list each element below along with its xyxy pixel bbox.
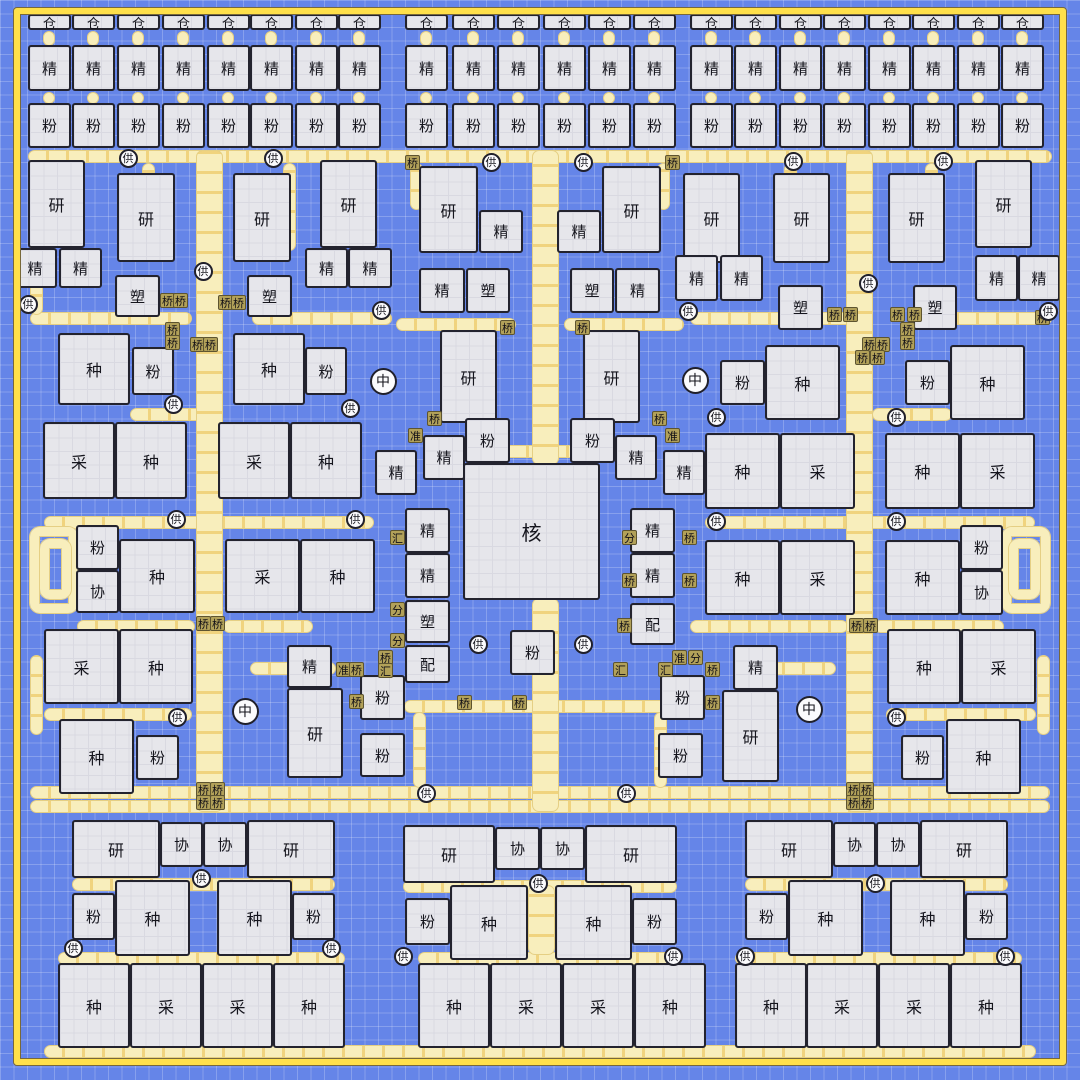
conveyor-coil[interactable] — [1009, 539, 1040, 599]
building-mill[interactable]: 粉 — [660, 675, 705, 720]
building-planter[interactable]: 种 — [950, 963, 1022, 1048]
splitter-tile[interactable]: 分 — [622, 530, 637, 545]
building-storage[interactable]: 仓 — [823, 14, 866, 30]
building-refiner[interactable]: 精 — [72, 45, 115, 91]
building-refiner[interactable]: 精 — [287, 645, 332, 688]
building-planter[interactable]: 种 — [115, 422, 187, 499]
building-refiner[interactable]: 精 — [912, 45, 955, 91]
building-storage[interactable]: 仓 — [295, 14, 338, 30]
supply-node[interactable]: 供 — [64, 939, 83, 958]
building-refiner[interactable]: 精 — [348, 248, 392, 288]
building-storage[interactable]: 仓 — [338, 14, 381, 30]
bridge-tile[interactable]: 桥 — [575, 320, 590, 335]
building-mill[interactable]: 粉 — [72, 893, 115, 940]
building-mill[interactable]: 粉 — [136, 735, 179, 780]
building-assist[interactable]: 协 — [160, 822, 203, 867]
building-refiner[interactable]: 精 — [207, 45, 250, 91]
building-storage[interactable]: 仓 — [734, 14, 777, 30]
supply-node[interactable]: 供 — [574, 153, 593, 172]
supply-node[interactable]: 供 — [707, 512, 726, 531]
building-storage[interactable]: 仓 — [912, 14, 955, 30]
building-molder[interactable]: 塑 — [247, 275, 292, 317]
building-mill[interactable]: 粉 — [868, 103, 911, 148]
bridge-tile[interactable]: 桥 — [682, 530, 697, 545]
building-planter[interactable]: 种 — [418, 963, 490, 1048]
building-mill[interactable]: 粉 — [250, 103, 293, 148]
building-planter[interactable]: 种 — [115, 880, 190, 956]
building-refiner[interactable]: 精 — [162, 45, 205, 91]
building-storage[interactable]: 仓 — [779, 14, 822, 30]
building-refiner[interactable]: 精 — [497, 45, 540, 91]
supply-node[interactable]: 供 — [707, 408, 726, 427]
bridge-tile[interactable]: 桥 — [682, 573, 697, 588]
building-mill[interactable]: 粉 — [779, 103, 822, 148]
conveyor-link[interactable] — [467, 31, 479, 46]
building-planter[interactable]: 种 — [634, 963, 706, 1048]
supply-node[interactable]: 供 — [679, 302, 698, 321]
building-mill[interactable]: 粉 — [633, 103, 676, 148]
conveyor-link[interactable] — [132, 31, 144, 46]
conveyor-coil[interactable] — [40, 539, 71, 599]
building-molder[interactable]: 塑 — [570, 268, 614, 313]
supply-node[interactable]: 供 — [341, 399, 360, 418]
building-refiner[interactable]: 精 — [117, 45, 160, 91]
conveyor-belt[interactable] — [528, 885, 555, 955]
building-planter[interactable]: 种 — [233, 333, 305, 405]
building-mill[interactable]: 粉 — [295, 103, 338, 148]
bridge-tile[interactable]: 桥 — [500, 320, 515, 335]
building-mill[interactable]: 粉 — [960, 525, 1003, 570]
building-refiner[interactable]: 精 — [305, 248, 348, 288]
conveyor-belt[interactable] — [690, 620, 848, 633]
building-mill[interactable]: 粉 — [28, 103, 71, 148]
conveyor-link[interactable] — [87, 31, 99, 46]
merger-tile[interactable]: 汇 — [390, 530, 405, 545]
building-refiner[interactable]: 精 — [557, 210, 601, 253]
aligner-tile[interactable]: 准 — [408, 428, 423, 443]
splitter-tile[interactable]: 分 — [390, 602, 405, 617]
hub-node[interactable]: 中 — [370, 368, 397, 395]
building-storage[interactable]: 仓 — [117, 14, 160, 30]
building-mill[interactable]: 粉 — [305, 347, 347, 395]
bridge-tile[interactable]: 桥 — [870, 350, 885, 365]
supply-node[interactable]: 供 — [168, 708, 187, 727]
conveyor-link[interactable] — [648, 31, 660, 46]
building-lab[interactable]: 研 — [975, 160, 1032, 248]
building-mill[interactable]: 粉 — [465, 418, 510, 463]
conveyor-link[interactable] — [794, 31, 806, 46]
building-refiner[interactable]: 精 — [338, 45, 381, 91]
building-planter[interactable]: 种 — [300, 539, 375, 613]
bridge-tile[interactable]: 桥 — [890, 307, 905, 322]
conveyor-belt[interactable] — [223, 620, 313, 633]
building-planter[interactable]: 种 — [119, 539, 195, 613]
building-mill[interactable]: 粉 — [745, 893, 788, 940]
supply-node[interactable]: 供 — [19, 295, 38, 314]
aligner-tile[interactable]: 准 — [672, 650, 687, 665]
building-mill[interactable]: 粉 — [360, 675, 405, 720]
building-harvester[interactable]: 采 — [225, 539, 300, 613]
building-lab[interactable]: 研 — [440, 330, 497, 423]
building-storage[interactable]: 仓 — [588, 14, 631, 30]
building-mill[interactable]: 粉 — [905, 360, 950, 405]
building-assist[interactable]: 协 — [540, 827, 585, 870]
supply-node[interactable]: 供 — [372, 301, 391, 320]
building-lab[interactable]: 研 — [320, 160, 377, 248]
bridge-tile[interactable]: 桥 — [652, 411, 667, 426]
building-refiner[interactable]: 精 — [423, 435, 465, 480]
building-lab[interactable]: 研 — [583, 330, 640, 423]
building-mill[interactable]: 粉 — [720, 360, 765, 405]
building-storage[interactable]: 仓 — [957, 14, 1000, 30]
building-refiner[interactable]: 精 — [13, 248, 57, 288]
building-mill[interactable]: 粉 — [658, 733, 703, 778]
conveyor-belt[interactable] — [30, 655, 43, 735]
bridge-tile[interactable]: 桥 — [617, 618, 632, 633]
conveyor-belt[interactable] — [872, 408, 952, 421]
building-mill[interactable]: 粉 — [632, 898, 677, 945]
supply-node[interactable]: 供 — [996, 947, 1015, 966]
building-lab[interactable]: 研 — [247, 820, 335, 878]
building-mill[interactable]: 粉 — [823, 103, 866, 148]
building-mill[interactable]: 粉 — [570, 418, 615, 463]
building-harvester[interactable]: 采 — [202, 963, 273, 1048]
conveyor-link[interactable] — [972, 31, 984, 46]
building-harvester[interactable]: 采 — [960, 433, 1035, 509]
supply-node[interactable]: 供 — [887, 708, 906, 727]
building-planter[interactable]: 种 — [885, 433, 960, 509]
building-mill[interactable]: 粉 — [117, 103, 160, 148]
building-storage[interactable]: 仓 — [1001, 14, 1044, 30]
building-mill[interactable]: 粉 — [338, 103, 381, 148]
bridge-tile[interactable]: 桥 — [427, 411, 442, 426]
supply-node[interactable]: 供 — [322, 939, 341, 958]
supply-node[interactable]: 供 — [736, 947, 755, 966]
bridge-tile[interactable]: 桥 — [457, 695, 472, 710]
supply-node[interactable]: 供 — [194, 262, 213, 281]
building-mill[interactable]: 粉 — [965, 893, 1008, 940]
building-dispatcher[interactable]: 配 — [630, 603, 675, 645]
building-refiner[interactable]: 精 — [405, 45, 448, 91]
building-mill[interactable]: 粉 — [734, 103, 777, 148]
supply-node[interactable]: 供 — [119, 149, 138, 168]
building-core[interactable]: 核 — [463, 463, 600, 600]
building-storage[interactable]: 仓 — [162, 14, 205, 30]
supply-node[interactable]: 供 — [1039, 302, 1058, 321]
building-assist[interactable]: 协 — [203, 822, 247, 867]
conveyor-link[interactable] — [705, 31, 717, 46]
building-lab[interactable]: 研 — [602, 166, 661, 253]
conveyor-link[interactable] — [177, 31, 189, 46]
supply-node[interactable]: 供 — [664, 947, 683, 966]
bridge-tile[interactable]: 桥 — [165, 335, 180, 350]
building-molder[interactable]: 塑 — [466, 268, 510, 313]
bridge-tile[interactable]: 桥 — [210, 795, 225, 810]
building-lab[interactable]: 研 — [683, 173, 740, 263]
building-lab[interactable]: 研 — [287, 688, 343, 778]
bridge-tile[interactable]: 桥 — [827, 307, 842, 322]
building-lab[interactable]: 研 — [888, 173, 945, 263]
building-refiner[interactable]: 精 — [28, 45, 71, 91]
building-assist[interactable]: 协 — [960, 570, 1003, 615]
bridge-tile[interactable]: 桥 — [622, 573, 637, 588]
building-molder[interactable]: 塑 — [778, 285, 823, 330]
conveyor-link[interactable] — [420, 31, 432, 46]
building-lab[interactable]: 研 — [745, 820, 833, 878]
conveyor-link[interactable] — [310, 31, 322, 46]
conveyor-link[interactable] — [603, 31, 615, 46]
building-planter[interactable]: 种 — [735, 963, 807, 1048]
building-assist[interactable]: 协 — [76, 570, 119, 613]
conveyor-link[interactable] — [749, 31, 761, 46]
building-mill[interactable]: 粉 — [912, 103, 955, 148]
building-mill[interactable]: 粉 — [405, 103, 448, 148]
building-planter[interactable]: 种 — [290, 422, 362, 499]
building-storage[interactable]: 仓 — [250, 14, 293, 30]
bridge-tile[interactable]: 桥 — [196, 616, 211, 631]
bridge-tile[interactable]: 桥 — [863, 618, 878, 633]
building-storage[interactable]: 仓 — [72, 14, 115, 30]
bridge-tile[interactable]: 桥 — [173, 293, 188, 308]
building-planter[interactable]: 种 — [705, 433, 780, 509]
bridge-tile[interactable]: 桥 — [349, 662, 364, 677]
building-lab[interactable]: 研 — [403, 825, 495, 883]
supply-node[interactable]: 供 — [887, 408, 906, 427]
building-harvester[interactable]: 采 — [961, 629, 1036, 704]
building-lab[interactable]: 研 — [72, 820, 160, 878]
building-refiner[interactable]: 精 — [588, 45, 631, 91]
supply-node[interactable]: 供 — [469, 635, 488, 654]
building-mill[interactable]: 粉 — [72, 103, 115, 148]
bridge-tile[interactable]: 桥 — [349, 694, 364, 709]
merger-tile[interactable]: 汇 — [613, 662, 628, 677]
building-planter[interactable]: 种 — [58, 963, 130, 1048]
conveyor-link[interactable] — [1016, 31, 1028, 46]
building-mill[interactable]: 粉 — [1001, 103, 1044, 148]
conveyor-belt[interactable] — [1037, 655, 1050, 735]
building-mill[interactable]: 粉 — [132, 347, 174, 395]
supply-node[interactable]: 供 — [934, 152, 953, 171]
building-mill[interactable]: 粉 — [510, 630, 555, 675]
conveyor-link[interactable] — [838, 31, 850, 46]
building-storage[interactable]: 仓 — [690, 14, 733, 30]
supply-node[interactable]: 供 — [167, 510, 186, 529]
building-harvester[interactable]: 采 — [780, 433, 855, 509]
building-mill[interactable]: 粉 — [543, 103, 586, 148]
building-refiner[interactable]: 精 — [823, 45, 866, 91]
building-refiner[interactable]: 精 — [419, 268, 465, 313]
supply-node[interactable]: 供 — [617, 784, 636, 803]
building-assist[interactable]: 协 — [876, 822, 920, 867]
building-harvester[interactable]: 采 — [490, 963, 562, 1048]
building-storage[interactable]: 仓 — [497, 14, 540, 30]
building-storage[interactable]: 仓 — [543, 14, 586, 30]
building-refiner[interactable]: 精 — [675, 255, 718, 301]
supply-node[interactable]: 供 — [866, 874, 885, 893]
building-planter[interactable]: 种 — [885, 540, 960, 615]
building-refiner[interactable]: 精 — [405, 508, 450, 553]
building-planter[interactable]: 种 — [946, 719, 1021, 794]
building-lab[interactable]: 研 — [419, 166, 478, 253]
bridge-tile[interactable]: 桥 — [843, 307, 858, 322]
building-planter[interactable]: 种 — [217, 880, 292, 956]
building-mill[interactable]: 粉 — [497, 103, 540, 148]
bridge-tile[interactable]: 桥 — [405, 155, 420, 170]
building-storage[interactable]: 仓 — [405, 14, 448, 30]
building-harvester[interactable]: 采 — [44, 629, 119, 704]
supply-node[interactable]: 供 — [529, 874, 548, 893]
building-planter[interactable]: 种 — [788, 880, 863, 956]
splitter-tile[interactable]: 分 — [390, 633, 405, 648]
building-harvester[interactable]: 采 — [130, 963, 202, 1048]
building-molder[interactable]: 塑 — [405, 600, 450, 643]
supply-node[interactable]: 供 — [887, 512, 906, 531]
building-lab[interactable]: 研 — [28, 160, 85, 248]
building-refiner[interactable]: 精 — [1001, 45, 1044, 91]
building-planter[interactable]: 种 — [765, 345, 840, 420]
building-mill[interactable]: 粉 — [360, 733, 405, 777]
supply-node[interactable]: 供 — [784, 152, 803, 171]
bridge-tile[interactable]: 桥 — [203, 337, 218, 352]
building-refiner[interactable]: 精 — [615, 268, 660, 313]
supply-node[interactable]: 供 — [417, 784, 436, 803]
supply-node[interactable]: 供 — [859, 274, 878, 293]
building-harvester[interactable]: 采 — [806, 963, 878, 1048]
conveyor-belt[interactable] — [413, 712, 426, 788]
supply-node[interactable]: 供 — [482, 153, 501, 172]
conveyor-link[interactable] — [353, 31, 365, 46]
conveyor-link[interactable] — [558, 31, 570, 46]
building-assist[interactable]: 协 — [833, 822, 876, 867]
building-refiner[interactable]: 精 — [1018, 255, 1060, 301]
aligner-tile[interactable]: 准 — [665, 428, 680, 443]
building-mill[interactable]: 粉 — [405, 898, 450, 945]
conveyor-link[interactable] — [883, 31, 895, 46]
building-planter[interactable]: 种 — [705, 540, 780, 615]
building-lab[interactable]: 研 — [585, 825, 677, 883]
building-refiner[interactable]: 精 — [295, 45, 338, 91]
building-planter[interactable]: 种 — [58, 333, 130, 405]
building-refiner[interactable]: 精 — [615, 435, 657, 480]
conveyor-link[interactable] — [222, 31, 234, 46]
building-refiner[interactable]: 精 — [868, 45, 911, 91]
building-planter[interactable]: 种 — [887, 629, 961, 704]
building-lab[interactable]: 研 — [233, 173, 291, 262]
hub-node[interactable]: 中 — [682, 367, 709, 394]
building-refiner[interactable]: 精 — [375, 450, 417, 495]
building-dispatcher[interactable]: 配 — [405, 645, 450, 683]
building-storage[interactable]: 仓 — [868, 14, 911, 30]
building-refiner[interactable]: 精 — [957, 45, 1000, 91]
supply-node[interactable]: 供 — [574, 635, 593, 654]
building-mill[interactable]: 粉 — [162, 103, 205, 148]
bridge-tile[interactable]: 桥 — [907, 307, 922, 322]
building-mill[interactable]: 粉 — [76, 525, 119, 570]
building-mill[interactable]: 粉 — [901, 735, 944, 780]
building-mill[interactable]: 粉 — [690, 103, 733, 148]
building-planter[interactable]: 种 — [450, 885, 528, 960]
building-storage[interactable]: 仓 — [207, 14, 250, 30]
building-storage[interactable]: 仓 — [633, 14, 676, 30]
bridge-tile[interactable]: 桥 — [705, 695, 720, 710]
building-lab[interactable]: 研 — [920, 820, 1008, 878]
building-refiner[interactable]: 精 — [779, 45, 822, 91]
supply-node[interactable]: 供 — [346, 510, 365, 529]
bridge-tile[interactable]: 桥 — [210, 616, 225, 631]
conveyor-belt[interactable] — [532, 150, 559, 465]
building-refiner[interactable]: 精 — [452, 45, 495, 91]
building-refiner[interactable]: 精 — [734, 45, 777, 91]
splitter-tile[interactable]: 分 — [688, 650, 703, 665]
building-harvester[interactable]: 采 — [878, 963, 950, 1048]
conveyor-link[interactable] — [512, 31, 524, 46]
building-planter[interactable]: 种 — [555, 885, 632, 960]
building-mill[interactable]: 粉 — [452, 103, 495, 148]
building-harvester[interactable]: 采 — [562, 963, 634, 1048]
building-refiner[interactable]: 精 — [690, 45, 733, 91]
building-storage[interactable]: 仓 — [28, 14, 71, 30]
building-refiner[interactable]: 精 — [720, 255, 763, 301]
bridge-tile[interactable]: 桥 — [231, 295, 246, 310]
building-mill[interactable]: 粉 — [588, 103, 631, 148]
building-planter[interactable]: 种 — [950, 345, 1025, 420]
supply-node[interactable]: 供 — [264, 149, 283, 168]
building-refiner[interactable]: 精 — [250, 45, 293, 91]
building-harvester[interactable]: 采 — [780, 540, 855, 615]
building-refiner[interactable]: 精 — [59, 248, 102, 288]
merger-tile[interactable]: 汇 — [658, 662, 673, 677]
building-refiner[interactable]: 精 — [733, 645, 778, 690]
building-planter[interactable]: 种 — [119, 629, 193, 704]
building-planter[interactable]: 种 — [59, 719, 134, 794]
bridge-tile[interactable]: 桥 — [900, 335, 915, 350]
conveyor-link[interactable] — [927, 31, 939, 46]
conveyor-link[interactable] — [265, 31, 277, 46]
building-lab[interactable]: 研 — [722, 690, 779, 782]
building-refiner[interactable]: 精 — [633, 45, 676, 91]
bridge-tile[interactable]: 桥 — [196, 795, 211, 810]
supply-node[interactable]: 供 — [164, 395, 183, 414]
building-refiner[interactable]: 精 — [975, 255, 1018, 301]
building-molder[interactable]: 塑 — [115, 275, 160, 317]
building-lab[interactable]: 研 — [773, 173, 830, 263]
building-refiner[interactable]: 精 — [479, 210, 523, 253]
building-planter[interactable]: 种 — [273, 963, 345, 1048]
building-harvester[interactable]: 采 — [43, 422, 115, 499]
bridge-tile[interactable]: 桥 — [512, 695, 527, 710]
bridge-tile[interactable]: 桥 — [849, 618, 864, 633]
hub-node[interactable]: 中 — [232, 698, 259, 725]
building-refiner[interactable]: 精 — [543, 45, 586, 91]
building-mill[interactable]: 粉 — [207, 103, 250, 148]
bridge-tile[interactable]: 桥 — [665, 155, 680, 170]
bridge-tile[interactable]: 桥 — [705, 662, 720, 677]
supply-node[interactable]: 供 — [394, 947, 413, 966]
merger-tile[interactable]: 汇 — [378, 663, 393, 678]
supply-node[interactable]: 供 — [192, 869, 211, 888]
building-assist[interactable]: 协 — [495, 827, 540, 870]
building-mill[interactable]: 粉 — [292, 893, 335, 940]
conveyor-link[interactable] — [43, 31, 55, 46]
building-refiner[interactable]: 精 — [663, 450, 705, 495]
hub-node[interactable]: 中 — [796, 696, 823, 723]
building-storage[interactable]: 仓 — [452, 14, 495, 30]
building-mill[interactable]: 粉 — [957, 103, 1000, 148]
building-lab[interactable]: 研 — [117, 173, 175, 262]
bridge-tile[interactable]: 桥 — [855, 350, 870, 365]
building-refiner[interactable]: 精 — [405, 553, 450, 598]
building-harvester[interactable]: 采 — [218, 422, 290, 499]
